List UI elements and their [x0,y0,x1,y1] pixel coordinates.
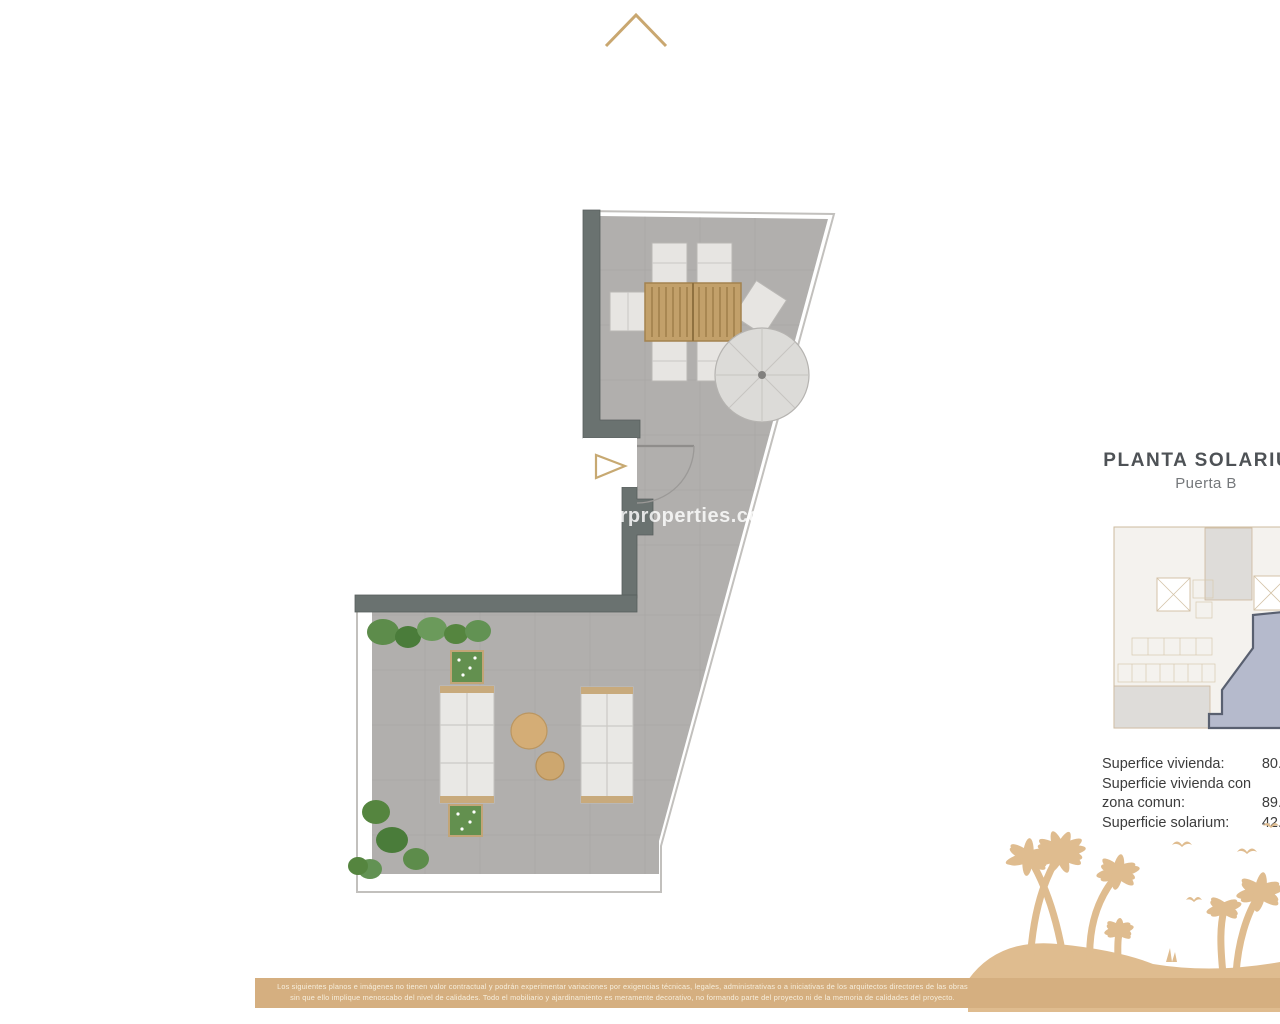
side-table-large [511,713,547,749]
area-row: Superficie vivienda con [1102,775,1280,795]
disclaimer-text: Los siguientes planos e imágenes no tien… [255,981,990,1003]
page-subtitle: Puerta B [1100,475,1280,492]
area-row: zona comun: 89. [1102,794,1280,814]
wall-lower-top [355,595,637,612]
disclaimer-line-1: Los siguientes planos e imágenes no tien… [255,981,990,992]
area-label: Superficie vivienda con [1102,775,1251,795]
key-plan [1113,518,1280,733]
page: { "header": { "logo_mark": "gold-chevron… [0,0,1280,1024]
dining-table [645,283,741,341]
watermark-text: arproperties.co [608,505,761,528]
area-label: Superfice vivienda: [1102,755,1225,775]
area-label: zona comun: [1102,794,1185,814]
side-table-small [536,752,564,780]
planter-top [451,651,483,683]
area-value: 89. [1262,794,1280,814]
area-row: Superfice vivienda: 80. [1102,755,1280,775]
disclaimer-line-2: sin que ello implique menoscabo del nive… [255,992,990,1003]
parasol [715,328,809,422]
page-title: PLANTA SOLARIUM [1100,450,1280,472]
sun-lounger-left [440,686,494,803]
planter-bottom [449,805,482,836]
logo-chevron-icon [598,6,674,50]
area-value: 80. [1262,755,1280,775]
floorplan-drawing [340,195,850,905]
sun-lounger-right [581,687,633,803]
